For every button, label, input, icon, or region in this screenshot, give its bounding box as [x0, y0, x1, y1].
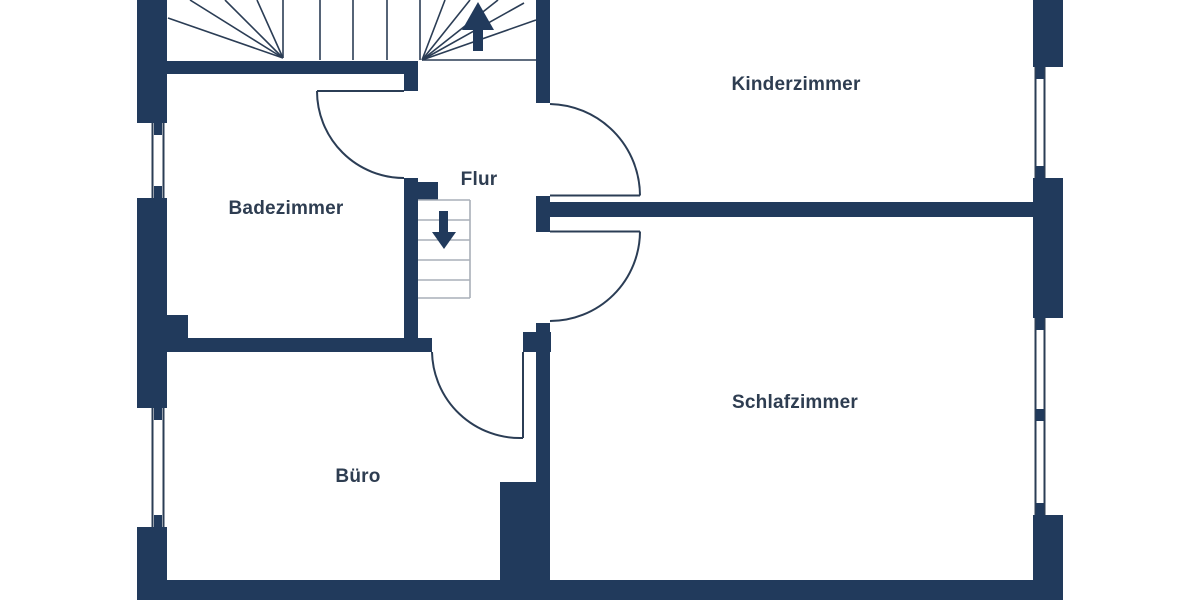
wall: [536, 323, 550, 580]
stairs-down-arrow-icon: [432, 211, 456, 249]
wall: [137, 580, 1063, 600]
wall: [167, 61, 418, 74]
wall: [404, 182, 438, 200]
room-label-schlafzimmer: Schlafzimmer: [732, 392, 858, 414]
room-label-buero: Büro: [335, 466, 380, 488]
wall: [404, 178, 418, 338]
wall: [137, 0, 167, 123]
walls-layer: [137, 0, 1063, 600]
windows-layer: [153, 67, 1045, 527]
wall: [1033, 0, 1063, 67]
wall: [500, 482, 537, 580]
window-badezimmer: [153, 123, 164, 198]
floor-plan: Kinderzimmer Badezimmer Flur Schlafzimme…: [0, 0, 1200, 600]
wall: [536, 196, 550, 232]
room-label-kinderzimmer: Kinderzimmer: [731, 74, 860, 96]
wall: [550, 202, 1033, 217]
door-kinderzimmer: [550, 104, 640, 196]
door-schlafzimmer: [550, 232, 640, 322]
room-label-badezimmer: Badezimmer: [229, 198, 344, 220]
wall: [404, 74, 418, 91]
window-schlafzimmer: [1036, 318, 1045, 515]
window-kinderzimmer: [1036, 67, 1045, 178]
wall: [137, 198, 167, 408]
door-badezimmer: [317, 91, 404, 178]
wall: [163, 338, 432, 352]
window-buero: [153, 408, 164, 527]
room-label-flur: Flur: [461, 169, 498, 191]
floor-plan-drawing: [0, 0, 1200, 600]
wall: [536, 0, 550, 103]
doors-layer: [317, 91, 640, 438]
door-buero: [432, 352, 523, 438]
wall: [1033, 178, 1063, 318]
wall: [1033, 515, 1063, 600]
